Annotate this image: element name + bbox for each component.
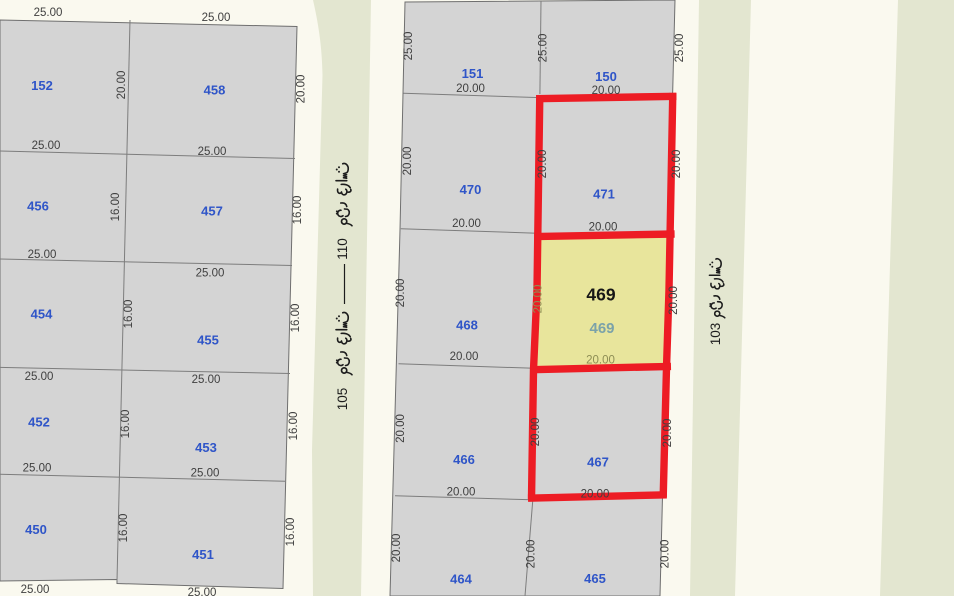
svg-text:25.00: 25.00	[34, 7, 63, 19]
svg-text:103: 103	[708, 323, 723, 346]
svg-text:16.00: 16.00	[288, 412, 300, 441]
svg-text:25.00: 25.00	[196, 268, 225, 280]
svg-text:20.00: 20.00	[450, 351, 479, 363]
svg-text:25.00: 25.00	[191, 468, 220, 480]
svg-text:20.00: 20.00	[452, 218, 481, 230]
svg-text:20.00: 20.00	[456, 83, 485, 95]
svg-text:469: 469	[589, 320, 614, 337]
svg-text:25.00: 25.00	[188, 587, 217, 596]
svg-text:150: 150	[595, 69, 617, 84]
svg-text:467: 467	[587, 455, 609, 470]
svg-text:465: 465	[584, 571, 606, 586]
svg-text:456: 456	[27, 199, 49, 214]
svg-text:25.00: 25.00	[403, 32, 415, 61]
svg-text:25.00: 25.00	[674, 34, 686, 63]
svg-text:452: 452	[28, 415, 50, 430]
svg-text:25.00: 25.00	[23, 463, 52, 475]
svg-text:151: 151	[462, 66, 484, 81]
svg-text:20.00: 20.00	[589, 222, 618, 234]
svg-text:16.00: 16.00	[290, 304, 302, 333]
svg-text:471: 471	[593, 187, 615, 202]
svg-text:468: 468	[456, 318, 478, 333]
svg-text:20.00: 20.00	[395, 279, 407, 308]
svg-text:16.00: 16.00	[118, 514, 130, 543]
svg-text:16.00: 16.00	[123, 300, 135, 329]
svg-text:20.00: 20.00	[402, 147, 414, 176]
svg-text:16.00: 16.00	[120, 410, 132, 439]
svg-text:16.00: 16.00	[292, 196, 304, 225]
svg-text:20.00: 20.00	[592, 85, 621, 97]
svg-text:20.00: 20.00	[395, 414, 407, 443]
svg-text:25.00: 25.00	[202, 12, 231, 24]
svg-text:20.00: 20.00	[391, 534, 403, 563]
svg-text:25.00: 25.00	[28, 249, 57, 261]
svg-text:455: 455	[197, 333, 219, 348]
svg-text:25.00: 25.00	[21, 584, 50, 596]
svg-text:20.00: 20.00	[662, 419, 674, 448]
svg-text:464: 464	[450, 572, 472, 587]
svg-text:25.00: 25.00	[32, 140, 61, 152]
svg-text:20.00: 20.00	[526, 540, 538, 569]
svg-text:110: 110	[335, 238, 350, 260]
svg-text:20.00: 20.00	[659, 540, 671, 569]
svg-text:451: 451	[192, 547, 214, 562]
svg-text:25.00: 25.00	[198, 146, 227, 158]
svg-text:20.00: 20.00	[116, 71, 128, 100]
svg-text:450: 450	[25, 522, 47, 537]
svg-text:20.00: 20.00	[530, 418, 542, 447]
svg-text:20.00: 20.00	[668, 286, 680, 315]
svg-text:20.00: 20.00	[533, 285, 545, 314]
svg-text:25.00: 25.00	[25, 371, 54, 383]
svg-text:20.00: 20.00	[581, 489, 610, 501]
svg-text:152: 152	[31, 78, 53, 93]
svg-text:20.00: 20.00	[537, 150, 549, 179]
svg-text:469: 469	[586, 285, 615, 305]
svg-text:458: 458	[204, 83, 226, 98]
svg-text:105: 105	[335, 388, 350, 411]
svg-text:20.00: 20.00	[671, 150, 683, 179]
svg-text:16.00: 16.00	[285, 518, 297, 547]
svg-text:466: 466	[453, 452, 475, 467]
svg-text:20.00: 20.00	[586, 355, 615, 367]
svg-text:25.00: 25.00	[538, 34, 550, 63]
svg-text:20.00: 20.00	[296, 75, 308, 104]
svg-text:454: 454	[31, 307, 53, 322]
svg-text:457: 457	[201, 204, 223, 219]
svg-text:470: 470	[460, 182, 482, 197]
svg-text:453: 453	[195, 440, 217, 455]
svg-text:20.00: 20.00	[447, 487, 476, 499]
svg-text:16.00: 16.00	[110, 193, 122, 222]
svg-text:25.00: 25.00	[192, 374, 221, 386]
